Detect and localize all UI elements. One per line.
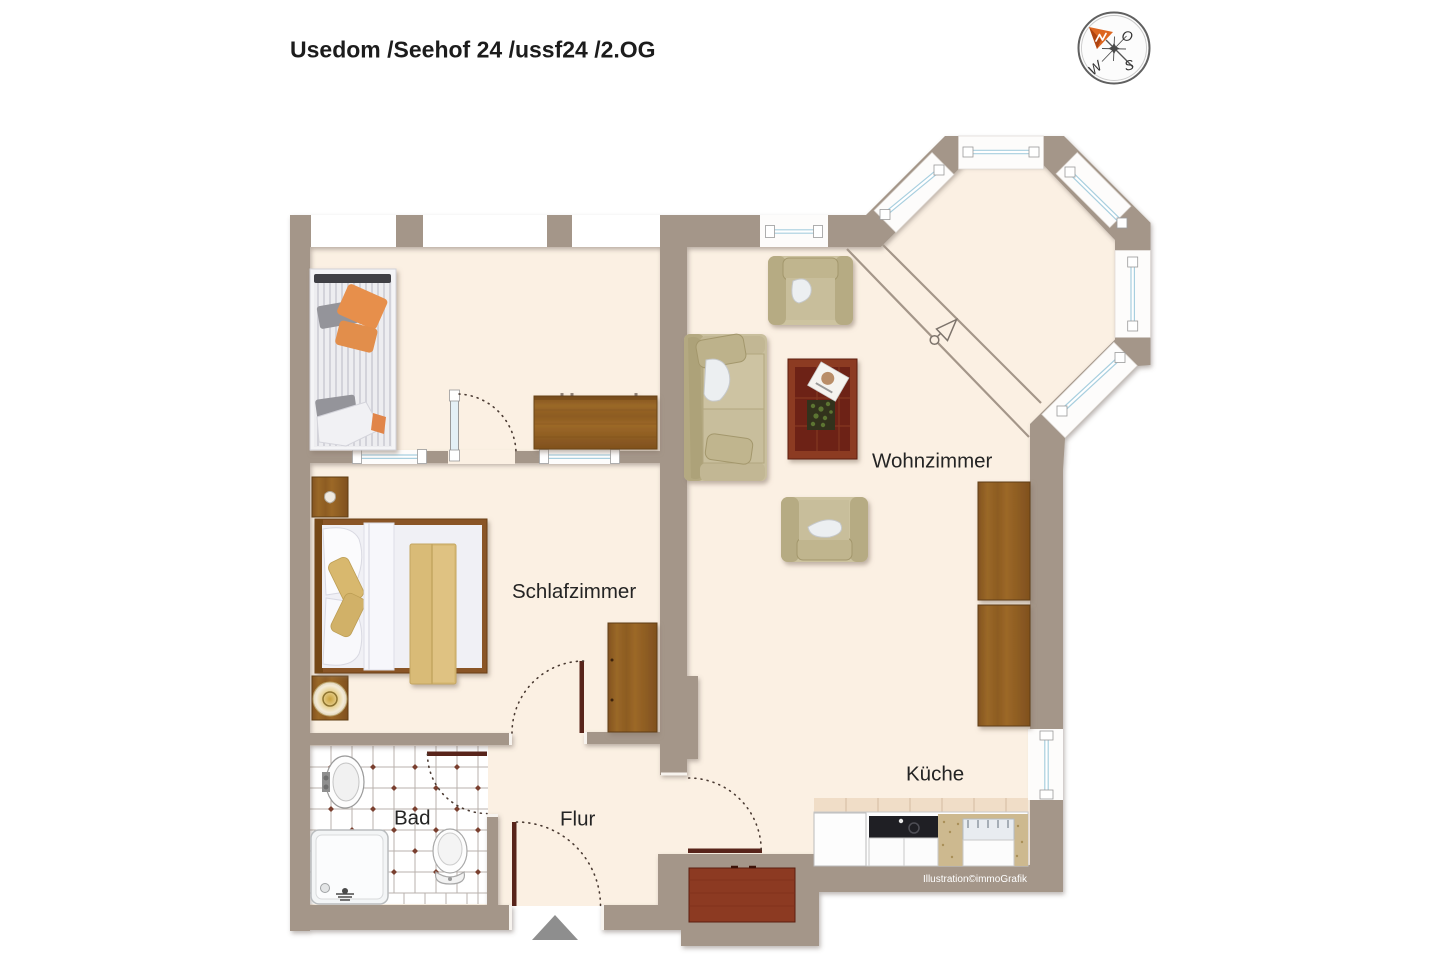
svg-text:Schlafzimmer: Schlafzimmer — [512, 580, 636, 603]
svg-text:Flur: Flur — [560, 808, 595, 831]
svg-text:Bad: Bad — [394, 807, 430, 830]
svg-text:Illustration©immoGrafik: Illustration©immoGrafik — [923, 874, 1028, 885]
svg-text:Küche: Küche — [906, 763, 964, 786]
svg-text:Wohnzimmer: Wohnzimmer — [872, 450, 993, 473]
svg-text:Usedom /Seehof 24 /ussf24 /2.O: Usedom /Seehof 24 /ussf24 /2.OG — [290, 37, 656, 63]
